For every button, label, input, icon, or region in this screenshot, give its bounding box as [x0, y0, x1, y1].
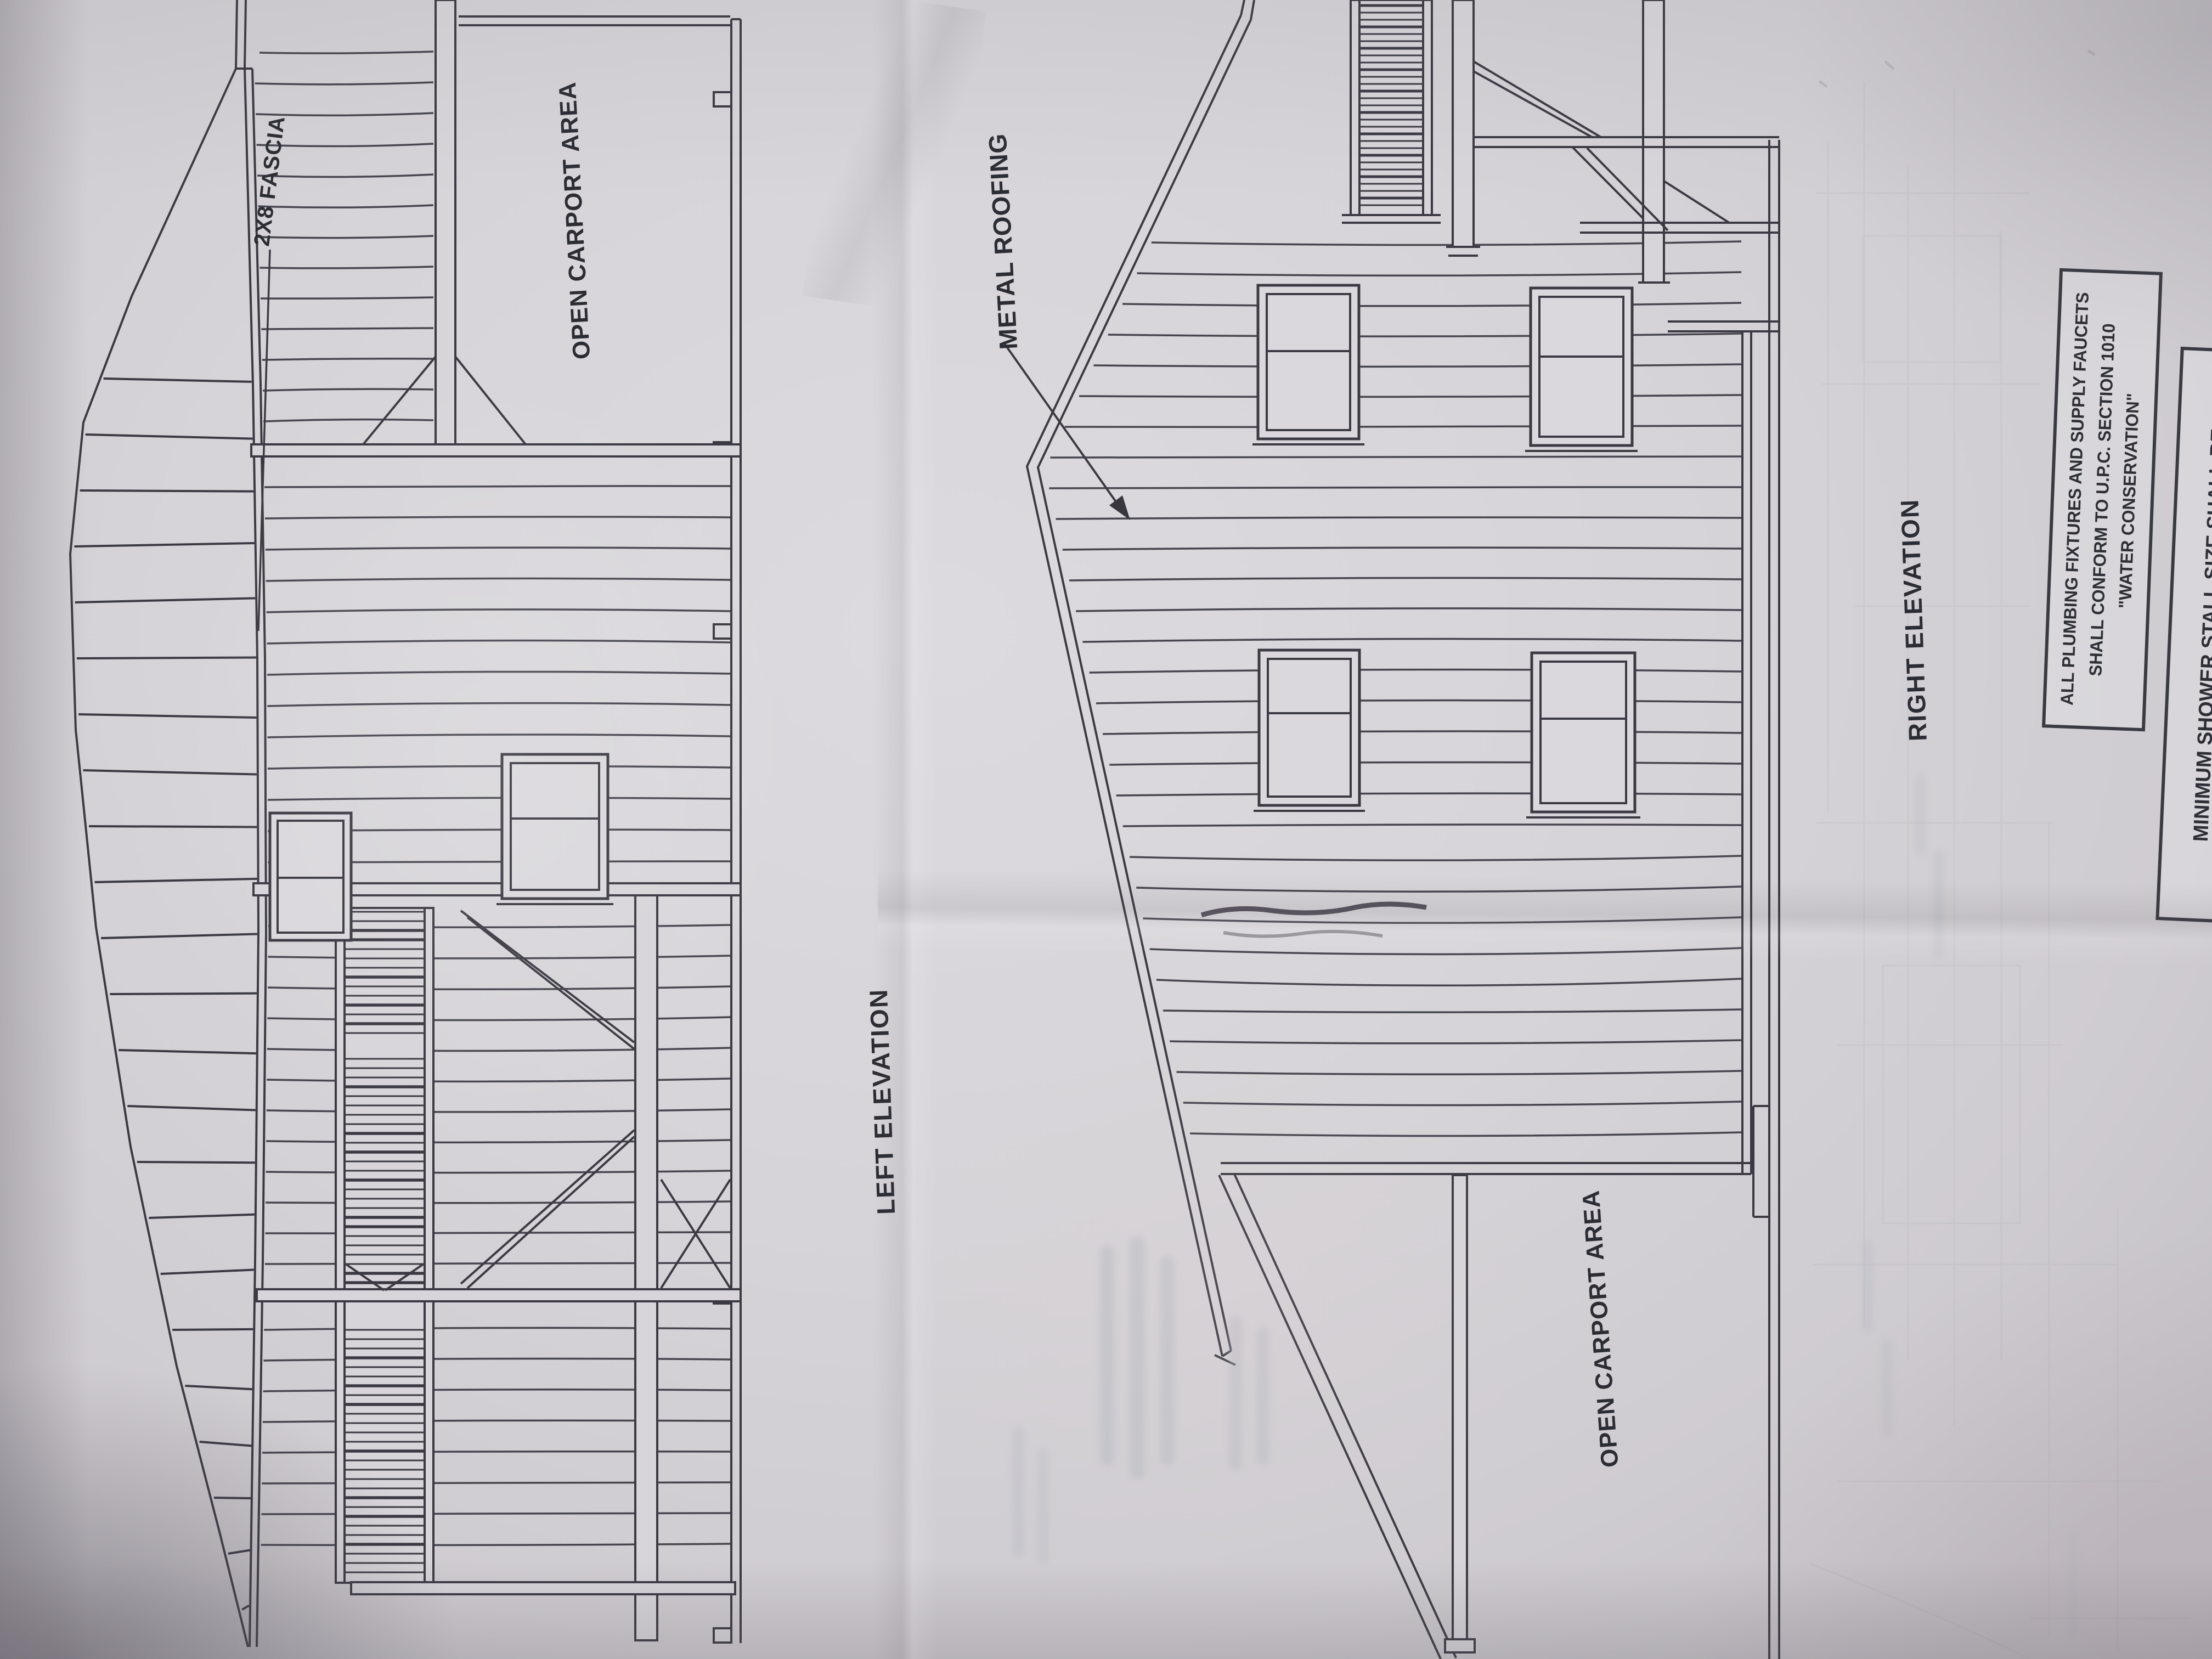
shower-note-line: MINIMUM SHOWER STALL SIZE SHALL BE: [2183, 397, 2212, 873]
right-elevation-siding-lines: [1049, 241, 1741, 1136]
left-roof-rungs: [74, 379, 257, 1610]
plumbing-note-box: ALL PLUMBING FIXTURES AND SUPPLY FAUCETS…: [2042, 268, 2163, 732]
right-elevation-drawing: [1004, 0, 1779, 1659]
left-elevation-drawing: [70, 0, 741, 1647]
left-elevation-siding-lines: [255, 52, 730, 1545]
blueprint-photo: 2X8 FASCIA OPEN CARPORT AREA LEFT ELEVAT…: [0, 0, 2212, 1659]
